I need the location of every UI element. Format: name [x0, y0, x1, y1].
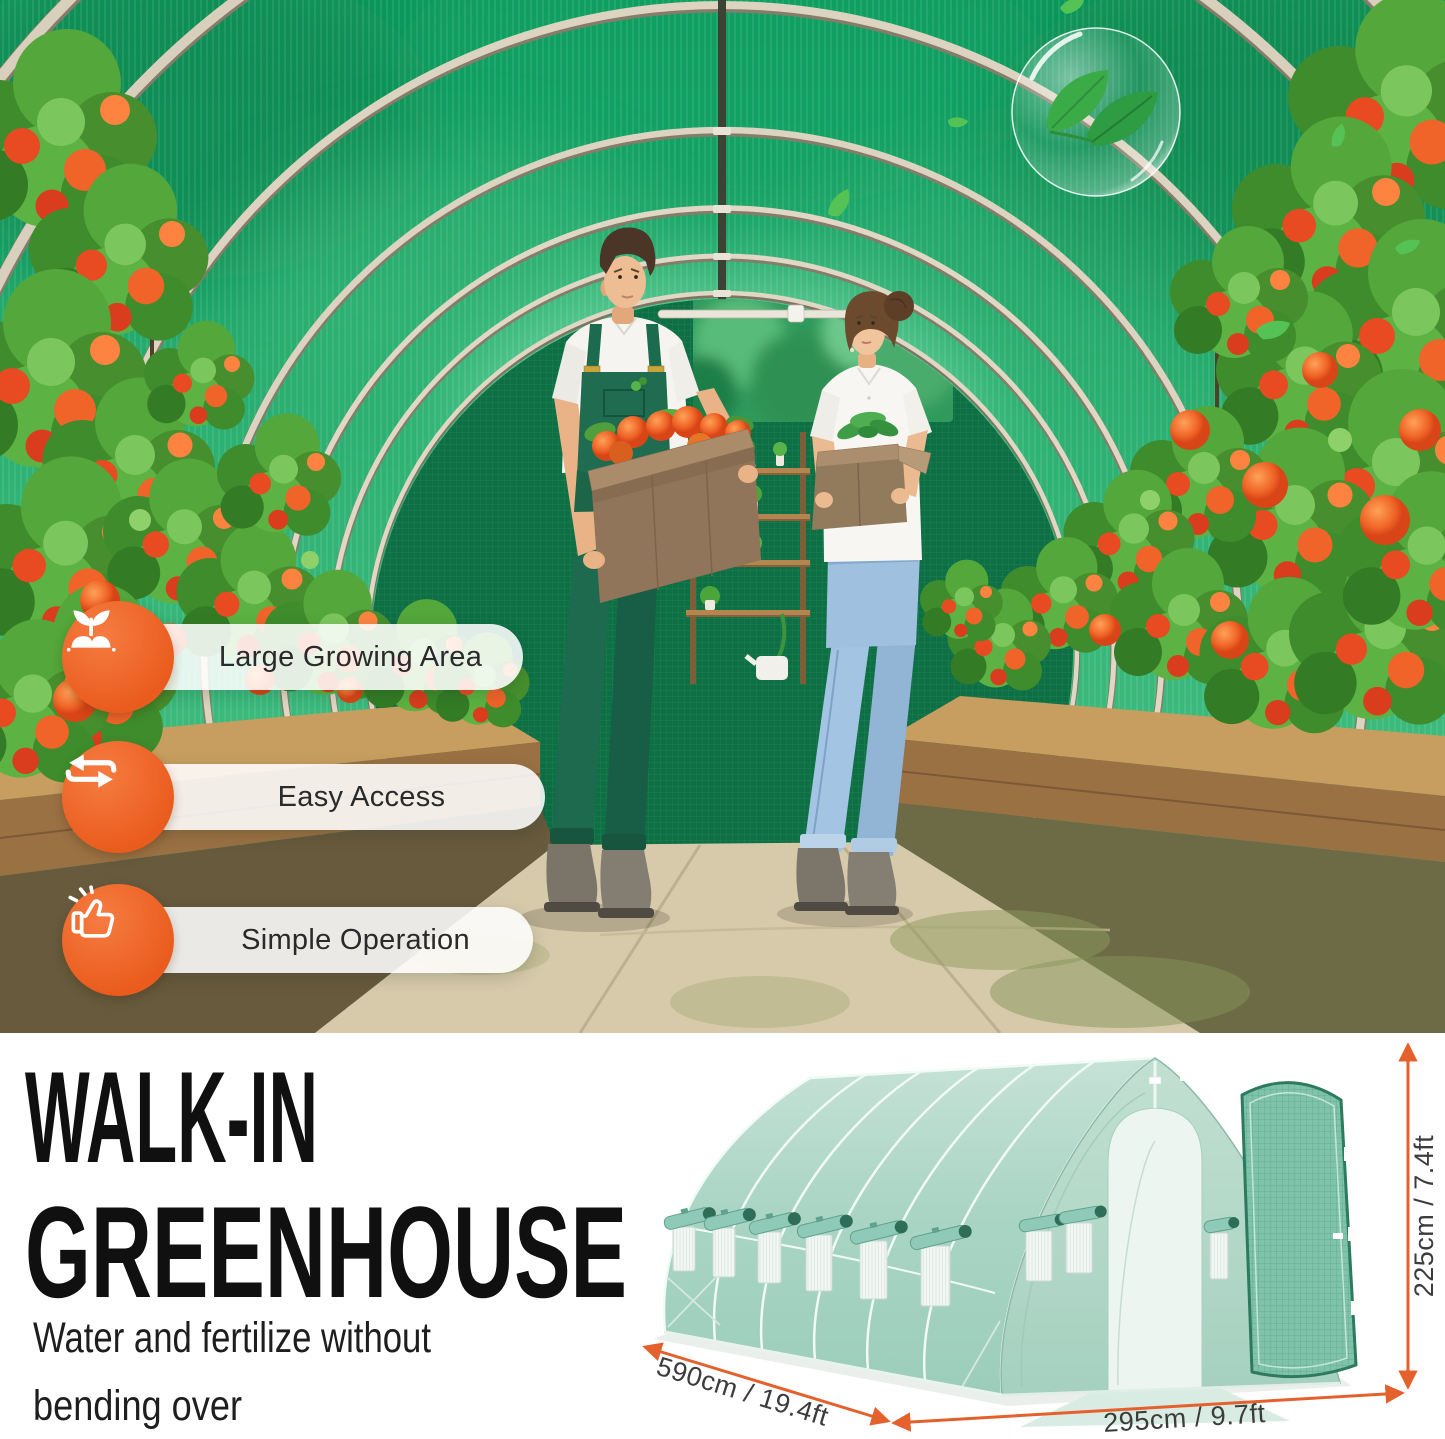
feature-label: Large Growing Area: [219, 641, 482, 674]
subtitle-line2: bending over: [33, 1382, 242, 1430]
headline-block: WALK-IN GREENHOUSE Water and fertilize w…: [0, 1032, 640, 1439]
height-dimension-label: 225cm / 7.4ft: [1409, 1135, 1439, 1298]
height-dimension: 225cm / 7.4ft: [1408, 1045, 1439, 1387]
feature-badge-simple-operation: [62, 884, 174, 996]
open-door: [1242, 1083, 1360, 1377]
sprout-icon: [62, 601, 120, 659]
subtitle-line1: Water and fertilize without: [33, 1314, 431, 1362]
swap-arrows-icon: [62, 741, 120, 799]
greenhouse-photo: Large Growing Area Easy Access Simple: [0, 0, 1445, 1033]
feature-label: Easy Access: [278, 781, 446, 814]
thumbs-up-icon: [62, 884, 120, 942]
feature-label: Simple Operation: [241, 924, 470, 957]
feature-badge-easy-access: [62, 741, 174, 853]
headline-line1: WALK-IN: [25, 1044, 318, 1190]
door-handle: [1333, 1233, 1343, 1239]
photo-scene: [0, 0, 1445, 1033]
feature-badge-growing-area: [62, 601, 174, 713]
greenhouse-illustration: 590cm / 19.4ft 295cm / 9.7ft 225cm / 7.4…: [645, 1045, 1439, 1438]
greenhouse-product-image: Large Growing Area Easy Access Simple: [0, 0, 1445, 1439]
headline-line2: GREENHOUSE: [25, 1179, 627, 1325]
leaf-bubble: [1012, 28, 1180, 196]
door-opening: [1108, 1108, 1202, 1391]
greenhouse-diagram: 590cm / 19.4ft 295cm / 9.7ft 225cm / 7.4…: [640, 1035, 1445, 1439]
